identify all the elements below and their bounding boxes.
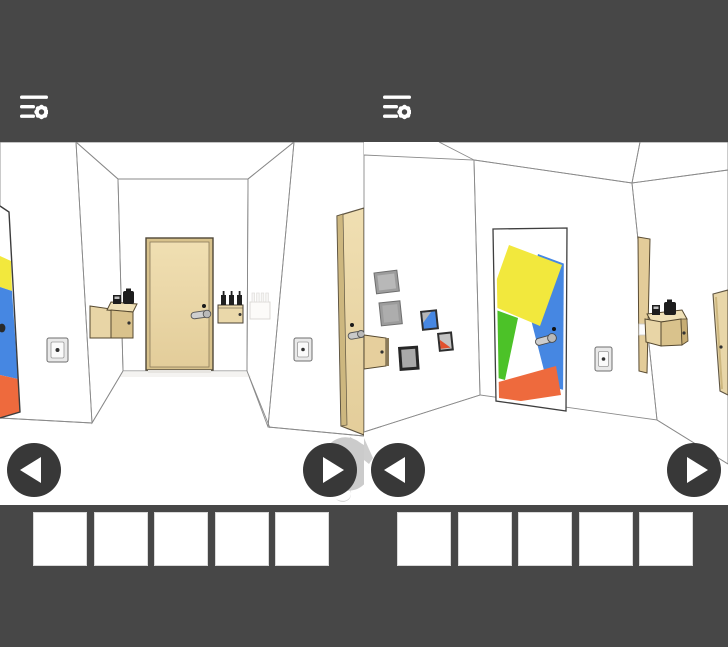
next-arrow-button-left-panel[interactable] [303,443,357,497]
top-bar [0,0,728,142]
next-arrow-button-right-panel[interactable] [667,443,721,497]
inventory-slot[interactable] [579,512,633,566]
keyhole[interactable] [552,327,556,331]
keyhole [239,313,242,316]
picture-frame-blue[interactable] [420,309,439,331]
left-arrow-icon [20,457,41,483]
inventory-slot[interactable] [215,512,269,566]
light-switch-left[interactable] [47,338,68,362]
beige-door-right[interactable] [337,208,364,435]
inventory-slot[interactable] [639,512,693,566]
light-switch-right[interactable] [294,338,312,361]
prev-arrow-button-right-panel[interactable] [371,443,425,497]
light-switch[interactable] [595,347,612,371]
bottles [221,291,242,305]
open-cabinet-door[interactable] [645,319,662,346]
picture-frame-red-triangle[interactable] [437,331,454,351]
keyhole [127,321,130,324]
picture-frame-gray-2[interactable] [379,301,402,326]
right-arrow-icon [323,457,344,483]
left-arrow-icon [384,457,405,483]
painted-door[interactable] [488,228,567,411]
inventory-slot[interactable] [458,512,512,566]
prev-arrow-button-left-panel[interactable] [7,443,61,497]
keyhole[interactable] [350,323,354,327]
keyhole [682,331,685,334]
right-arrow-icon [687,457,708,483]
inventory-slot[interactable] [518,512,572,566]
inventory-slot[interactable] [397,512,451,566]
door-threshold [148,370,211,373]
keyhole[interactable] [202,304,206,308]
handle-dot [380,350,383,353]
screen [0,0,728,647]
inventory-slot[interactable] [94,512,148,566]
picture-frame-dark[interactable] [398,346,420,371]
inventory-slot[interactable] [33,512,87,566]
beige-door-center[interactable] [146,238,213,373]
inventory-slot[interactable] [275,512,329,566]
open-cabinet-door[interactable] [90,306,111,338]
menu-settings-button-left[interactable] [20,93,48,121]
wall-cabinet-open[interactable] [364,335,389,369]
inventory-slot[interactable] [154,512,208,566]
gear-icon [396,104,411,120]
menu-settings-button-right[interactable] [383,93,411,121]
gear-icon [33,104,48,120]
dispenser-box-with-bottles[interactable] [218,291,243,323]
menu-settings-icon [20,93,48,121]
keyhole [719,345,722,348]
picture-frame-gray-1[interactable] [374,270,399,294]
menu-settings-icon [383,93,411,121]
